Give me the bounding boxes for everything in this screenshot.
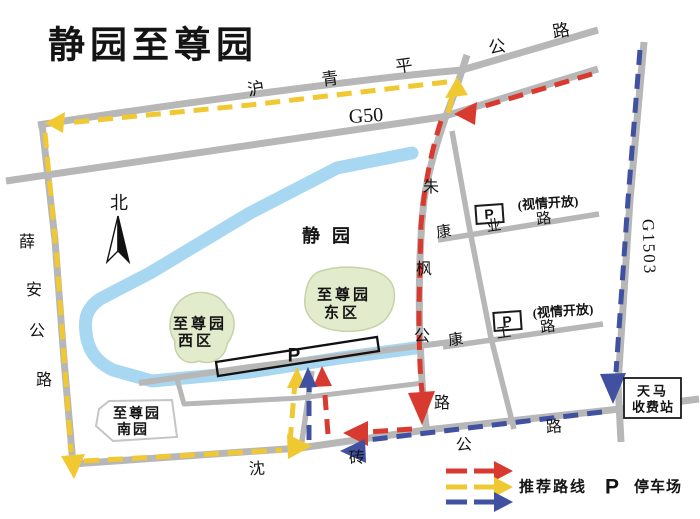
toll-station-label: 天马 — [637, 385, 669, 398]
compass-needle-icon — [118, 216, 129, 262]
road-label-huqingping: 路 — [551, 21, 571, 41]
road-label-shenzhuan: 公 — [455, 437, 472, 454]
road-kanggong — [443, 324, 603, 347]
legend-parking-label: 停车场 — [634, 481, 682, 496]
road-label-huqingping: 青 — [320, 69, 339, 88]
road-label-xuean: 安 — [26, 283, 42, 299]
area-label-jingyuan: 静园 — [302, 227, 362, 245]
road-label-xuean: 路 — [36, 373, 52, 389]
road-label-kanggong: 路 — [540, 320, 557, 337]
red-arrow-parking-icon — [313, 366, 332, 387]
parking-symbol-1: P — [484, 207, 494, 222]
legend-blue-arrowhead-icon — [494, 492, 513, 512]
map-canvas: 静园至尊园 沪 青 平 公 路 G50 薛 安 公 路 朱 枫 公 路 G150… — [0, 0, 700, 519]
road-label-huqingping: 沪 — [246, 79, 266, 99]
yellow-arrow-north-icon — [445, 77, 468, 98]
road-label-shenzhuan: 砖 — [348, 450, 365, 467]
toll-station-label: 收费站 — [632, 401, 674, 414]
legend-route-label: 推荐路线 — [519, 481, 587, 496]
road-label-zhufeng: 路 — [434, 396, 450, 412]
road-label-xuean: 公 — [29, 324, 45, 340]
area-label-west: 至尊园 — [173, 318, 227, 333]
compass-north-label: 北 — [110, 194, 128, 212]
road-label-kanggong: 康 — [448, 333, 465, 350]
road-label-huqingping: 公 — [487, 37, 507, 57]
yellow-arrow-west-icon — [45, 112, 65, 133]
road-label-huqingping: 平 — [394, 56, 413, 75]
road-label-g1503: G1503 — [640, 219, 659, 276]
red-arrow-west-icon — [454, 102, 477, 125]
parking-symbol-2: P — [502, 314, 512, 329]
road-label-kangye: 路 — [536, 212, 553, 229]
route-yellow-access — [290, 382, 295, 442]
road-connector — [452, 131, 514, 429]
road-label-shenzhuan: 路 — [545, 419, 562, 436]
road-label-g50: G50 — [348, 105, 384, 127]
road-label-zhufeng: 朱 — [423, 180, 439, 196]
road-label-kangye: 康 — [436, 225, 453, 242]
area-label-south: 至尊园 — [113, 408, 161, 422]
compass-needle-icon — [107, 216, 118, 262]
road-kangye — [438, 214, 599, 240]
road-label-zhufeng: 公 — [414, 329, 430, 345]
area-label-south: 南园 — [117, 424, 149, 438]
area-label-west: 西区 — [178, 335, 214, 350]
route-red-shenzhuan — [368, 429, 412, 432]
map-graphics — [0, 0, 700, 519]
red-arrow-south-icon — [408, 391, 435, 425]
road-label-xuean: 薛 — [19, 235, 35, 251]
route-red-access — [324, 383, 328, 434]
parking-lot-symbol: P — [288, 347, 301, 366]
area-label-east: 至尊园 — [317, 289, 371, 304]
river — [85, 153, 415, 381]
legend-parking-symbol: P — [605, 477, 619, 498]
page-title: 静园至尊园 — [48, 28, 258, 65]
legend-red-arrowhead-icon — [494, 461, 513, 481]
road-label-shenzhuan: 沈 — [248, 461, 265, 478]
area-label-east: 东区 — [324, 307, 360, 322]
road-label-zhufeng: 枫 — [416, 262, 432, 278]
